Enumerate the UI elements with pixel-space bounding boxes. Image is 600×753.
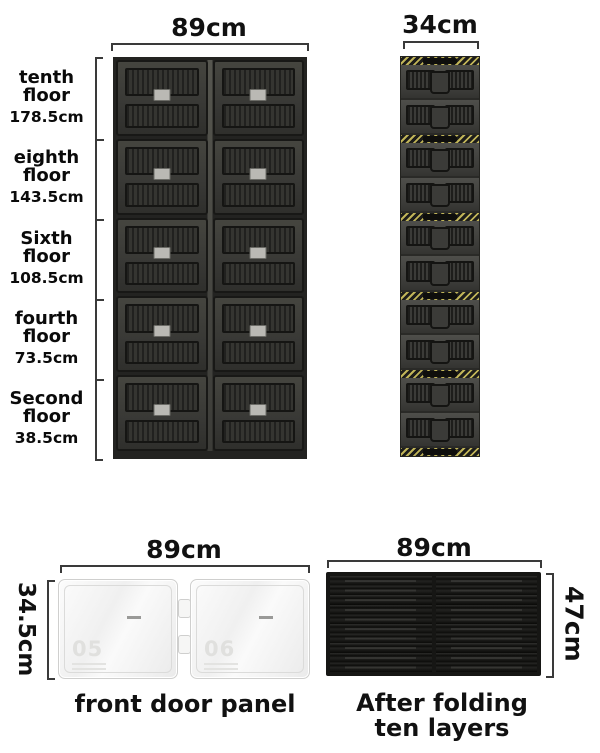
cabinet-width-label: 89cm	[110, 13, 308, 42]
folded-panel	[401, 65, 479, 100]
floor-name: tenth floor	[8, 69, 86, 105]
door-panel-caption: front door panel	[34, 692, 336, 717]
door-watermark: 06	[204, 639, 235, 660]
door-handle-mark	[127, 616, 141, 619]
storage-box-cell	[116, 218, 208, 294]
door-watermark-lines	[204, 663, 238, 671]
band-label-pill	[423, 449, 457, 455]
folded-panel	[401, 378, 479, 413]
box-vent-bottom	[222, 104, 296, 127]
panel-center-clip	[430, 341, 450, 364]
floor-label: tenth floor 178.5cm	[0, 57, 93, 137]
box-latch	[153, 89, 170, 101]
folded-panel	[401, 413, 479, 448]
panel-center-clip	[430, 71, 450, 94]
floor-tick-mark	[97, 139, 104, 141]
storage-box-cell	[116, 139, 208, 215]
door-width-label: 89cm	[84, 535, 284, 564]
hazard-stripe-band	[401, 57, 479, 65]
stack-caption-line2: ten layers	[338, 716, 546, 741]
box-latch	[250, 247, 267, 259]
band-label-pill	[423, 136, 457, 142]
floor-name: eighth floor	[8, 149, 86, 185]
stack-caption-line1: After folding	[338, 691, 546, 716]
band-label-pill	[423, 371, 457, 377]
box-latch	[250, 89, 267, 101]
box-vent-bottom	[125, 104, 199, 127]
box-latch	[153, 168, 170, 180]
box-vent-bottom	[125, 420, 199, 443]
stack-width-dimension-bracket	[327, 560, 542, 568]
folded-column-width-dimension-bracket	[403, 41, 479, 49]
folded-panel	[401, 300, 479, 335]
box-latch	[250, 404, 267, 416]
floor-height-value: 73.5cm	[15, 349, 79, 367]
front-door-panel-image: 05 06	[58, 579, 310, 679]
box-latch	[153, 247, 170, 259]
hazard-stripe-band	[401, 370, 479, 378]
storage-box-cell	[116, 60, 208, 136]
door-handle-mark	[259, 616, 273, 619]
floor-name: Second floor	[8, 390, 86, 426]
folded-panel	[401, 178, 479, 213]
door-width-dimension-bracket	[60, 565, 310, 573]
stack-left-half	[330, 576, 432, 672]
stack-width-label: 89cm	[330, 533, 538, 562]
panel-center-clip	[430, 184, 450, 207]
cabinet-width-dimension-bracket	[111, 43, 309, 51]
storage-cabinet-image	[113, 57, 307, 459]
box-vent-bottom	[222, 420, 296, 443]
folded-panel	[401, 221, 479, 256]
folded-column-image	[400, 56, 480, 457]
door-height-label: 34.5cm	[8, 580, 44, 678]
floor-height-value: 143.5cm	[9, 188, 83, 206]
panel-center-clip	[430, 227, 450, 250]
stack-height-dimension-bracket	[546, 573, 554, 678]
box-vent-bottom	[125, 341, 199, 364]
floor-tick-mark	[97, 219, 104, 221]
band-label-pill	[423, 293, 457, 299]
folded-panel	[401, 100, 479, 135]
folded-column-width-label: 34cm	[400, 10, 480, 39]
floor-tick-mark	[97, 299, 104, 301]
hazard-stripe-band	[401, 213, 479, 221]
floor-height-value: 38.5cm	[15, 429, 79, 447]
floor-name: fourth floor	[8, 310, 86, 346]
folded-stack-image	[326, 572, 541, 676]
band-label-pill	[423, 214, 457, 220]
panel-center-clip	[430, 106, 450, 129]
floor-height-value: 108.5cm	[9, 269, 83, 287]
folded-panel	[401, 256, 479, 291]
floor-label: Second floor 38.5cm	[0, 379, 93, 459]
door-height-dimension-bracket	[47, 580, 55, 680]
storage-box-cell	[116, 296, 208, 372]
panel-center-clip	[430, 149, 450, 172]
box-latch	[250, 325, 267, 337]
storage-box-cell	[116, 375, 208, 451]
door-leaf-right: 06	[190, 579, 310, 679]
door-hinge	[179, 579, 189, 679]
floor-labels: tenth floor 178.5cm eighth floor 143.5cm…	[0, 57, 93, 459]
door-leaf-left: 05	[58, 579, 178, 679]
storage-box-cell	[213, 218, 305, 294]
box-latch	[153, 404, 170, 416]
box-latch	[153, 325, 170, 337]
folded-panel	[401, 143, 479, 178]
door-watermark-lines	[72, 663, 106, 671]
box-latch	[250, 168, 267, 180]
floor-tick-mark	[97, 379, 104, 381]
panel-center-clip	[430, 419, 450, 442]
storage-box-cell	[213, 296, 305, 372]
band-label-pill	[423, 58, 457, 64]
hazard-stripe-band	[401, 135, 479, 143]
floor-name: Sixth floor	[8, 230, 86, 266]
box-vent-bottom	[125, 183, 199, 206]
panel-center-clip	[430, 384, 450, 407]
stack-caption: After folding ten layers	[338, 691, 546, 741]
storage-box-cell	[213, 375, 305, 451]
door-watermark: 05	[72, 639, 103, 660]
box-vent-bottom	[222, 183, 296, 206]
floor-label: Sixth floor 108.5cm	[0, 218, 93, 298]
hazard-stripe-band	[401, 448, 479, 456]
panel-center-clip	[430, 262, 450, 285]
hazard-stripe-band	[401, 292, 479, 300]
box-vent-bottom	[222, 341, 296, 364]
box-vent-bottom	[222, 262, 296, 285]
folded-panel	[401, 335, 479, 370]
stack-right-half	[436, 576, 538, 672]
stack-height-label: 47cm	[556, 570, 592, 678]
panel-center-clip	[430, 305, 450, 328]
floor-height-value: 178.5cm	[9, 108, 83, 126]
floor-label: eighth floor 143.5cm	[0, 137, 93, 217]
box-vent-bottom	[125, 262, 199, 285]
storage-box-cell	[213, 60, 305, 136]
storage-box-cell	[213, 139, 305, 215]
cabinet-height-dimension-bracket	[95, 57, 103, 461]
floor-label: fourth floor 73.5cm	[0, 298, 93, 378]
